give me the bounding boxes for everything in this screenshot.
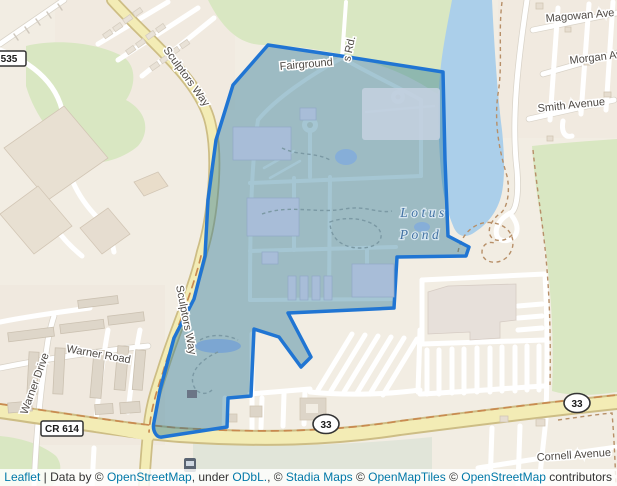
shield-route33-west: 33	[313, 415, 339, 434]
shield-cr614: CR 614	[41, 421, 83, 436]
attribution-text: ©	[446, 470, 462, 484]
stadia-maps-link[interactable]: Stadia Maps	[286, 470, 353, 484]
svg-text:33: 33	[320, 420, 332, 431]
odbl-link[interactable]: ODbL.	[232, 470, 267, 484]
svg-text:33: 33	[571, 399, 583, 410]
attribution-bar: Leaflet | Data by © OpenStreetMap, under…	[0, 469, 617, 486]
shield-route33-east: 33	[564, 394, 590, 413]
svg-text:CR 614: CR 614	[45, 424, 79, 435]
lotus-pond-label-line1: Lotus	[399, 205, 448, 220]
attribution-text: ©	[353, 470, 369, 484]
attribution-text: contributors	[546, 470, 612, 484]
svg-text:535: 535	[1, 54, 18, 65]
shield-cr535: 535	[0, 51, 26, 66]
openstreetmap-link[interactable]: OpenStreetMap	[107, 470, 192, 484]
openmaptiles-link[interactable]: OpenMapTiles	[368, 470, 446, 484]
leaflet-map-canvas[interactable]: Sculptors Way Sculptors Way Fairground s…	[0, 0, 617, 486]
openstreetmap-contributors-link[interactable]: OpenStreetMap	[461, 470, 546, 484]
lotus-pond-label-line2: Pond	[399, 227, 443, 242]
leaflet-link[interactable]: Leaflet	[4, 470, 40, 484]
attribution-text: | Data by ©	[40, 470, 107, 484]
attribution-text: , ©	[267, 470, 286, 484]
attribution-text: , under	[192, 470, 233, 484]
parking-area	[362, 88, 440, 140]
